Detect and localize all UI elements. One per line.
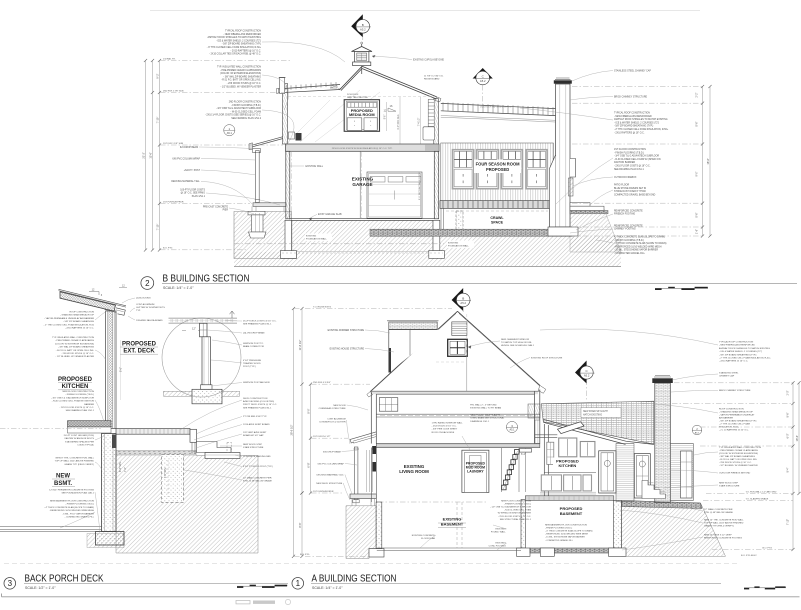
svg-text:ROOF CONSTRUCTION: ROOF CONSTRUCTION xyxy=(719,409,744,411)
svg-text:STAGGERED SPACING PER: STAGGERED SPACING PER xyxy=(65,440,94,443)
svg-text:8'-6": 8'-6" xyxy=(385,115,387,120)
svg-text:NEW W16X31 WIDE FLANGE: NEW W16X31 WIDE FLANGE xyxy=(470,414,500,417)
svg-text:GRADE TYP. (FIELD VERIFY): GRADE TYP. (FIELD VERIFY) xyxy=(64,463,94,466)
svg-text:- FINISH FLOORING (T.B.D.): - FINISH FLOORING (T.B.D.) xyxy=(65,504,94,506)
svg-text:EXISTING CUPOLA BEYOND: EXISTING CUPOLA BEYOND xyxy=(413,59,444,62)
svg-text:- 2X10 FLOOR JOISTS @ 16" O.C.: - 2X10 FLOOR JOISTS @ 16" O.C. xyxy=(498,516,531,518)
svg-text:BTW. @ 48" BELOW GRADE: BTW. @ 48" BELOW GRADE xyxy=(704,511,733,514)
svg-text:B: B xyxy=(462,297,464,301)
svg-text:7'-10": 7'-10" xyxy=(156,117,160,124)
svg-text:- REINFORCED 10/10 WELDED WIRE: - REINFORCED 10/10 WELDED WIRE MESH xyxy=(545,534,588,536)
svg-text:BEAM CONNECTOR: BEAM CONNECTOR xyxy=(243,345,264,348)
svg-text:SEE FRAMING PLAN 1/S1.1: SEE FRAMING PLAN 1/S1.1 xyxy=(243,323,272,326)
svg-text:(COLOR: W/ EXTERIOR ELEVATIONS: (COLOR: W/ EXTERIOR ELEVATIONS) xyxy=(220,72,261,75)
svg-text:PROPOSED: PROPOSED xyxy=(486,167,509,172)
svg-text:EXISTING HOUSE STRUCTURE: EXISTING HOUSE STRUCTURE xyxy=(330,349,365,351)
svg-text:A5.2: A5.2 xyxy=(460,301,466,305)
svg-text:SEE FRAMING PLAN 1/S1.1: SEE FRAMING PLAN 1/S1.1 xyxy=(614,168,644,171)
svg-text:1: 1 xyxy=(296,579,301,588)
svg-text:- 2X6 WOOD STUDS @ 16" O.C.: - 2X6 WOOD STUDS @ 16" O.C. xyxy=(61,353,94,355)
svg-text:TOP OF WALL @24" ABOVE FINISHE: TOP OF WALL @24" ABOVE FINISHED xyxy=(55,460,95,463)
svg-text:- PRE-PRIMED CEDAR CLAPBOARDS: - PRE-PRIMED CEDAR CLAPBOARDS xyxy=(719,449,758,452)
svg-text:HUNGS. SEE SCHEDULE 2/A6.1: HUNGS. SEE SCHEDULE 2/A6.1 xyxy=(501,344,535,347)
svg-text:2ND FLR 6'-8 3/4": 2ND FLR 6'-8 3/4" xyxy=(313,382,331,384)
svg-text:- FINISH FLOORING (T.B.D.): - FINISH FLOORING (T.B.D.) xyxy=(65,394,94,396)
svg-text:NEW WOOD STEP: NEW WOOD STEP xyxy=(243,444,263,446)
svg-text:- 3/8" WAL ZIP BOARD SHEATHING: - 3/8" WAL ZIP BOARD SHEATHING xyxy=(58,346,94,349)
svg-text:- R-30 CLOSED CELL FOAM W/ (SP: - R-30 CLOSED CELL FOAM W/ (SPRAY-ON xyxy=(614,158,661,161)
svg-text:REINFORCED CONCRETE: REINFORCED CONCRETE xyxy=(614,211,643,213)
svg-text:- 9" THK CLOSED CELL FOAM INSU: - 9" THK CLOSED CELL FOAM INSULATION, R-… xyxy=(207,46,262,49)
svg-text:2ND FLR 2 7/8" SUB: 2ND FLR 2 7/8" SUB xyxy=(163,90,184,92)
svg-text:- R-21 F.G. BATT OR OPEN CELL: - R-21 F.G. BATT OR OPEN CELL INS. xyxy=(719,458,758,461)
svg-text:REINFORCED CONCRETE: REINFORCED CONCRETE xyxy=(614,226,643,228)
svg-text:TYP. INSULATED WALL CONSTRUCTI: TYP. INSULATED WALL CONSTRUCTION xyxy=(217,66,261,69)
svg-text:BARRIER: BARRIER xyxy=(84,403,94,406)
svg-text:(2)LOW DROP BEAM: (2)LOW DROP BEAM xyxy=(243,332,265,335)
svg-text:DECK CONSTRUCTION: DECK CONSTRUCTION xyxy=(243,398,268,400)
svg-text:(COLOR: W/ EXTERIOR ELEVATIONS: (COLOR: W/ EXTERIOR ELEVATIONS) xyxy=(55,342,94,345)
svg-text:NEW CASEMENT WINDOW: NEW CASEMENT WINDOW xyxy=(501,338,530,341)
svg-text:8'-6": 8'-6" xyxy=(696,212,699,217)
svg-text:COMPACTED GRAVEL BASE BEYOND: COMPACTED GRAVEL BASE BEYOND xyxy=(614,193,656,196)
svg-text:TYP. INSULATED WALL CONSTRUCTI: TYP. INSULATED WALL CONSTRUCTION xyxy=(52,336,94,339)
svg-text:@ 16" O.C. SEE FRMG: @ 16" O.C. SEE FRMG xyxy=(181,193,206,195)
svg-text:- 2X12 FLOOR JOISTS @ 16" O.C.: - 2X12 FLOOR JOISTS @ 16" O.C. xyxy=(59,407,94,409)
svg-text:KITCHEN: KITCHEN xyxy=(559,463,577,468)
svg-text:- 3/4" OSB T.& G ADVANTECH SUB: - 3/4" OSB T.& G ADVANTECH SUBFLOOR xyxy=(614,155,659,158)
svg-text:T.O. SLAB/FIN GRADE: T.O. SLAB/FIN GRADE xyxy=(746,498,769,501)
svg-text:- NEW FIBERGLASS REINFORCED: - NEW FIBERGLASS REINFORCED xyxy=(614,115,652,118)
svg-text:1ST FLR/SUB FRDR: 1ST FLR/SUB FRDR xyxy=(313,491,334,493)
svg-text:4'-0" MIN.: 4'-0" MIN. xyxy=(164,467,167,478)
svg-text:RAFT TAILS BEYOND: RAFT TAILS BEYOND xyxy=(347,96,368,99)
svg-text:EXT. DECK: EXT. DECK xyxy=(123,349,155,355)
svg-text:- FINISH FLOORING (T.B.D.): - FINISH FLOORING (T.B.D.) xyxy=(231,105,261,107)
svg-text:DOWNSPOUT & GUTTER: DOWNSPOUT & GUTTER xyxy=(320,422,347,424)
svg-text:- 5/8" ZIP BOARD SHEATHING (TY: - 5/8" ZIP BOARD SHEATHING (TYP.) xyxy=(719,353,757,356)
svg-text:GRADE TYP. (FIELD VERIFY): GRADE TYP. (FIELD VERIFY) xyxy=(704,525,734,528)
svg-text:SCALE: 1/4" = 1'-0": SCALE: 1/4" = 1'-0" xyxy=(163,286,194,290)
svg-text:SIMPSON POST TO: SIMPSON POST TO xyxy=(243,343,263,345)
svg-text:- 4" THICK CONCRETE SLAB (SLOP: - 4" THICK CONCRETE SLAB (SLOPE TO DRAIN… xyxy=(44,506,94,509)
svg-text:2X10 FLOOR JOISTS W/ R-30 INSU: 2X10 FLOOR JOISTS W/ R-30 INSULATION @ 1… xyxy=(332,147,393,150)
svg-text:6'-8": 6'-8" xyxy=(307,462,311,467)
svg-text:- 2" THK CLOSED CELL FOAM INSU: - 2" THK CLOSED CELL FOAM INSULATION, R-… xyxy=(719,357,771,360)
svg-text:- 5/8" ZIP BOARD SHEATHING (TY: - 5/8" ZIP BOARD SHEATHING (TYP.) xyxy=(614,125,653,128)
svg-text:RIDGE BOARD: RIDGE BOARD xyxy=(424,78,440,81)
svg-text:PIER: PIER xyxy=(223,210,229,212)
svg-text:FOUNDATION WALL: FOUNDATION WALL xyxy=(448,245,470,248)
svg-text:BRICK CHIMNEY STRUCTURE: BRICK CHIMNEY STRUCTURE xyxy=(719,390,751,392)
svg-text:AZEK DECKING (COLOR TBD): AZEK DECKING (COLOR TBD) xyxy=(243,400,274,403)
svg-text:A5.2: A5.2 xyxy=(584,374,590,378)
svg-text:EXISTING: EXISTING xyxy=(448,243,459,245)
svg-text:FIREBOX FOOTING: FIREBOX FOOTING xyxy=(614,214,635,216)
svg-text:BACK PORCH DECK: BACK PORCH DECK xyxy=(25,574,104,585)
svg-text:4" THICK CONCRETE SLAB (SLOPE: 4" THICK CONCRETE SLAB (SLOPE TO DRAIN) xyxy=(614,236,665,239)
svg-text:- 5/8" ZIP BOARD SHEATHING (TY: - 5/8" ZIP BOARD SHEATHING (TYP.) xyxy=(222,43,261,46)
svg-text:B: B xyxy=(362,23,364,27)
svg-text:IGNITION BARRIER: IGNITION BARRIER xyxy=(614,161,635,164)
svg-text:ROCK ON EACH SIDE: ROCK ON EACH SIDE xyxy=(432,431,455,434)
svg-text:- STANDING SEAM METAL ROOF: - STANDING SEAM METAL ROOF xyxy=(719,411,754,414)
svg-text:- R-21 F.G. BATT OR OPEN CELL: - R-21 F.G. BATT OR OPEN CELL INS. xyxy=(56,349,95,352)
svg-text:- W-30 CLOSED CELL FOAM: - W-30 CLOSED CELL FOAM xyxy=(230,110,261,113)
svg-text:- R-30 CLOSED CELL FOAM W/ IGN: - R-30 CLOSED CELL FOAM W/ IGNITION xyxy=(52,400,95,403)
svg-text:2X10 ROOF RAFTERS @ 16" O.C.: 2X10 ROOF RAFTERS @ 16" O.C. xyxy=(480,106,512,109)
svg-text:CHIMNEY FOOTING: CHIMNEY FOOTING xyxy=(614,229,636,231)
svg-text:PT 2X8 RIM JOIST TYP.: PT 2X8 RIM JOIST TYP. xyxy=(243,416,267,418)
svg-text:EXISTING: EXISTING xyxy=(306,236,317,238)
svg-text:LIVING ROOM: LIVING ROOM xyxy=(399,469,429,474)
svg-text:- VAPOR-PERMEABLE UNDERLAY AIR: - VAPOR-PERMEABLE UNDERLAY AIR BARRIER xyxy=(44,317,94,320)
svg-text:- 1/2" BLUEBD. W/ VENEER PLAST: - 1/2" BLUEBD. W/ VENEER PLASTER xyxy=(220,85,261,88)
svg-text:B.O. FTG ELEV: B.O. FTG ELEV xyxy=(741,555,757,557)
svg-text:CODE) TYPICAL: CODE) TYPICAL xyxy=(77,444,95,447)
svg-text:AIR BARRIER: AIR BARRIER xyxy=(719,417,733,420)
svg-text:A5.1: A5.1 xyxy=(695,431,700,434)
svg-text:FOUNDATION WALL: FOUNDATION WALL xyxy=(306,238,328,241)
svg-text:A5.1: A5.1 xyxy=(510,429,516,432)
svg-text:PROPOSED: PROPOSED xyxy=(122,342,157,348)
svg-text:9'-0": 9'-0" xyxy=(696,171,699,176)
svg-text:- 3/8" WAL ZIP BOARD SHEATHING: - 3/8" WAL ZIP BOARD SHEATHING xyxy=(223,75,261,78)
svg-text:- 3/8" WAL ZIP BOARD SHEATHING: - 3/8" WAL ZIP BOARD SHEATHING xyxy=(719,455,755,458)
svg-text:DO-PT JOIST LEDGER (2X10): DO-PT JOIST LEDGER (2X10) xyxy=(64,435,95,437)
svg-text:100-PT FLOOR JOISTS: 100-PT FLOOR JOISTS xyxy=(180,190,205,192)
svg-text:1/2 RAIL HT.: 1/2 RAIL HT. xyxy=(163,57,176,60)
svg-text:NEW 10" THK. CONCRETE FDN. WAL: NEW 10" THK. CONCRETE FDN. WALL xyxy=(704,519,744,522)
svg-text:1'-6": 1'-6" xyxy=(696,229,699,234)
svg-text:BASEMENT: BASEMENT xyxy=(560,511,583,516)
svg-text:TYPICAL ROOF CONSTRUCTION: TYPICAL ROOF CONSTRUCTION xyxy=(225,30,261,33)
svg-text:NEW FIXED SKYLIGHT: NEW FIXED SKYLIGHT xyxy=(583,411,608,413)
svg-text:STAIR STRUCTURE: STAIR STRUCTURE xyxy=(243,446,264,449)
svg-text:EXISTING WALL TO FIT BEAM: EXISTING WALL TO FIT BEAM xyxy=(470,407,501,410)
svg-text:4"X4" PRESSURE: 4"X4" PRESSURE xyxy=(243,360,262,362)
svg-text:CURB/HEAD STRUCTURE: CURB/HEAD STRUCTURE xyxy=(319,407,347,410)
svg-text:A5.2: A5.2 xyxy=(480,79,486,83)
svg-text:FASTEN W/ ANCHOR BOLTS: FASTEN W/ ANCHOR BOLTS xyxy=(65,437,95,440)
svg-text:- 2X10 RAFTERS @ 16" O.C.: - 2X10 RAFTERS @ 16" O.C. xyxy=(614,131,645,134)
svg-text:- ICE & WATER SHIELD: 2 COURSE: - ICE & WATER SHIELD: 2 COURSES (72") xyxy=(216,39,261,42)
svg-text:EXISTING DORMER STRUCTURE: EXISTING DORMER STRUCTURE xyxy=(328,330,365,332)
svg-text:NEW 24" WIDE X 12" DEEP: NEW 24" WIDE X 12" DEEP xyxy=(704,535,732,537)
svg-text:12"X24" PERIMETER CONCRETE FOO: 12"X24" PERIMETER CONCRETE FOOTING xyxy=(49,490,94,492)
svg-text:TYP.: TYP. xyxy=(136,310,141,312)
svg-text:- R-21 F.G. BATT OR OPEN CELL: - R-21 F.G. BATT OR OPEN CELL INS. xyxy=(221,79,262,82)
svg-text:- 2" THK CLOSED CELL FOAM INSU: - 2" THK CLOSED CELL FOAM INSULATION, R-… xyxy=(44,323,95,326)
svg-text:1X8 AZEK FASCIA BOARD: 1X8 AZEK FASCIA BOARD xyxy=(136,319,163,322)
svg-text:- FINISH FLOORING (T.B.D.): - FINISH FLOORING (T.B.D.) xyxy=(545,528,572,530)
svg-text:12": 12" xyxy=(192,327,196,331)
svg-text:SIMPSON POST ANCHOR: SIMPSON POST ANCHOR xyxy=(243,381,270,384)
svg-text:- 15 MIL. STEGOHOME VAPOR BARR: - 15 MIL. STEGOHOME VAPOR BARRIER xyxy=(614,249,658,252)
svg-text:BASEMENT: BASEMENT xyxy=(441,521,464,526)
svg-text:CONT ALUMINUM: CONT ALUMINUM xyxy=(327,418,345,421)
svg-text:- 2X10 1/4 FLOOR JOISTS (SEE S: - 2X10 1/4 FLOOR JOISTS (SEE SERIES) @ 1… xyxy=(205,115,261,117)
svg-text:GUTTER W/ DOWNSPOUTS: GUTTER W/ DOWNSPOUTS xyxy=(136,307,165,309)
svg-text:- 2X10 RAFTERS @ 16" O.C.: - 2X10 RAFTERS @ 16" O.C. xyxy=(65,327,94,330)
svg-text:1ST FLOOR CONSTRUCTION: 1ST FLOOR CONSTRUCTION xyxy=(614,149,646,151)
svg-text:LAUNDRY: LAUNDRY xyxy=(467,470,484,474)
svg-text:STEEL BEAM SEE STRUCTURAL: STEEL BEAM SEE STRUCTURAL xyxy=(470,417,505,420)
svg-text:PROPOSED: PROPOSED xyxy=(58,377,93,383)
svg-text:2'-2": 2'-2" xyxy=(696,92,699,97)
svg-text:FOUND. WALL: FOUND. WALL xyxy=(491,531,507,534)
svg-text:6X6 PVC COLUMN WRAP: 6X6 PVC COLUMN WRAP xyxy=(172,157,200,160)
svg-text:T.O. FDN WALL 2'-0" ABV GRD: T.O. FDN WALL 2'-0" ABV GRD xyxy=(746,490,777,493)
svg-text:NEW FLOOR CONSTRUCTION: NEW FLOOR CONSTRUCTION xyxy=(63,391,95,393)
svg-text:- 2X4 STUDS @ 16" O.C.: - 2X4 STUDS @ 16" O.C. xyxy=(432,426,457,428)
svg-text:ASPHALT ROOF SHINGLES TO MATCH: ASPHALT ROOF SHINGLES TO MATCH EXISTING xyxy=(614,118,668,121)
svg-text:PRE-CAST CONCRETE: PRE-CAST CONCRETE xyxy=(203,206,229,209)
svg-text:2ND FLOOR CONSTRUCTION: 2ND FLOOR CONSTRUCTION xyxy=(229,102,262,104)
svg-text:2X8 PT DECK JOISTS @ 16" O.C.: 2X8 PT DECK JOISTS @ 16" O.C. xyxy=(243,404,277,406)
svg-text:BSMT.: BSMT. xyxy=(54,481,72,487)
svg-text:11'-8 1/2": 11'-8 1/2" xyxy=(298,340,302,351)
svg-text:- COMPACTED GRAVEL FILL: - COMPACTED GRAVEL FILL xyxy=(545,539,574,542)
svg-text:- ICE & WATER SHIELD: 2 COURSE: - ICE & WATER SHIELD: 2 COURSES (72") xyxy=(614,121,659,124)
svg-text:NEW WOOD STEP: NEW WOOD STEP xyxy=(719,483,739,485)
svg-text:- COMPACTED GRAVEL FILL: - COMPACTED GRAVEL FILL xyxy=(65,516,95,519)
svg-text:7'-10": 7'-10" xyxy=(787,519,790,525)
svg-text:12" DIAM. CONCRETE PIER: 12" DIAM. CONCRETE PIER xyxy=(243,477,272,480)
svg-text:9'-0" FIN. CLG: 9'-0" FIN. CLG xyxy=(398,114,400,129)
svg-text:PATIO FLOOR: PATIO FLOOR xyxy=(614,184,629,187)
svg-text:ASPHALT ROOF SHINGLES TO MATCH: ASPHALT ROOF SHINGLES TO MATCH EXISTING xyxy=(207,36,261,39)
svg-text:- FINISH FLOORING (T.B.D.): - FINISH FLOORING (T.B.D.) xyxy=(614,240,644,242)
svg-text:- 2X6 WOOD STUDS @ 16" O.C.: - 2X6 WOOD STUDS @ 16" O.C. xyxy=(719,462,752,464)
svg-text:ASPHALT ROOF SHINGLES TO MATCH: ASPHALT ROOF SHINGLES TO MATCH EXISTING xyxy=(719,347,770,350)
svg-text:GARAGE: GARAGE xyxy=(352,182,372,187)
svg-text:- 2" THK CLOSED CELL FOAM: - 2" THK CLOSED CELL FOAM xyxy=(719,423,750,426)
svg-text:- NEW FIBERGLASS REINFORCED: - NEW FIBERGLASS REINFORCED xyxy=(223,33,261,36)
svg-text:- 5/8" FIRE CODE SHEET: - 5/8" FIRE CODE SHEET xyxy=(432,429,458,431)
svg-text:7'-10": 7'-10" xyxy=(156,224,160,231)
svg-text:CONCRETE LANDING PAD: CONCRETE LANDING PAD xyxy=(243,455,271,458)
svg-text:NEW: NEW xyxy=(56,474,70,480)
svg-text:SEE FOUNDATION PLAN 1/A1.1: SEE FOUNDATION PLAN 1/A1.1 xyxy=(61,492,94,495)
svg-text:2: 2 xyxy=(145,279,150,288)
svg-text:8'-6": 8'-6" xyxy=(787,412,790,417)
svg-text:FIN. WALL 2"- 4" BEYOND: FIN. WALL 2"- 4" BEYOND xyxy=(470,404,497,407)
svg-text:KITCHEN: KITCHEN xyxy=(62,384,89,390)
svg-text:(COLOR: W/ EXTERIOR ELEVATIONS: (COLOR: W/ EXTERIOR ELEVATIONS) xyxy=(719,452,758,455)
svg-text:TYPICAL ROOF CONSTRUCTION: TYPICAL ROOF CONSTRUCTION xyxy=(719,341,754,344)
svg-text:1X10 AZEK SKIRT BOARD: 1X10 AZEK SKIRT BOARD xyxy=(243,423,270,426)
svg-text:(2) BLOCKING: (2) BLOCKING xyxy=(136,298,151,300)
svg-text:DECKING MATERIAL T.&G.: DECKING MATERIAL T.&G. xyxy=(317,474,345,477)
svg-text:1 HR. RATED INTERIOR WALL: 1 HR. RATED INTERIOR WALL xyxy=(432,422,464,425)
svg-text:STAINLESS STEEL CHIMNEY CAP: STAINLESS STEEL CHIMNEY CAP xyxy=(614,70,651,73)
svg-text:CONC FOOTING: CONC FOOTING xyxy=(489,546,506,548)
svg-text:SCALE: 1/2" = 1'-0": SCALE: 1/2" = 1'-0" xyxy=(25,586,56,590)
svg-text:- REINFORCED 10/10 WELDED WIRE: - REINFORCED 10/10 WELDED WIRE MESH xyxy=(614,246,662,248)
svg-text:- 1/2" BLUEBD. W/ VENEER PLAST: - 1/2" BLUEBD. W/ VENEER PLASTER xyxy=(55,355,94,358)
svg-text:- 3/4" OSB T.& G ADVANTECH SUB: - 3/4" OSB T.& G ADVANTECH SUBFLOOR xyxy=(216,107,261,110)
svg-text:NEW DOOR: NEW DOOR xyxy=(333,405,346,407)
svg-text:STAINLESS STEEL: STAINLESS STEEL xyxy=(719,372,739,375)
svg-text:NEW FLOOR CONSTRUCTION: NEW FLOOR CONSTRUCTION xyxy=(501,501,531,503)
svg-text:ROOF CONSTRUCTION: ROOF CONSTRUCTION xyxy=(69,312,94,314)
svg-text:- VAPOR-PERMEABLE UNDERLAY: - VAPOR-PERMEABLE UNDERLAY xyxy=(719,414,755,417)
svg-text:DRAWINGS 1/S1.1: DRAWINGS 1/S1.1 xyxy=(470,420,490,423)
svg-text:BLUE STONE PAVERS SET IN: BLUE STONE PAVERS SET IN xyxy=(614,187,646,190)
svg-text:1ST FLR/SUB FRDR: 1ST FLR/SUB FRDR xyxy=(163,201,184,203)
svg-text:11 7/8" X 2 3/4" LVL: 11 7/8" X 2 3/4" LVL xyxy=(424,76,444,78)
svg-text:1ST FLR 8'-0 1/2": 1ST FLR 8'-0 1/2" xyxy=(313,436,331,438)
svg-text:8'-6": 8'-6" xyxy=(120,367,123,372)
svg-text:B.O. FTG: B.O. FTG xyxy=(763,547,773,549)
svg-text:18'-6": 18'-6" xyxy=(706,158,710,165)
svg-text:EXISTING CONCRETE: EXISTING CONCRETE xyxy=(412,535,436,537)
svg-text:SEE FRAMING PLAN 1/S1.2: SEE FRAMING PLAN 1/S1.2 xyxy=(231,117,261,120)
svg-text:EXISTING: EXISTING xyxy=(495,529,506,531)
svg-text:OUTDOOR FIREBOX BEYOND: OUTDOOR FIREBOX BEYOND xyxy=(719,473,751,475)
svg-text:DECKING MATERIAL T.&G.: DECKING MATERIAL T.&G. xyxy=(171,180,200,183)
svg-text:EXISTING: EXISTING xyxy=(495,543,506,545)
svg-text:- 1/2" OSB T.& G ADVANTECH SUB: - 1/2" OSB T.& G ADVANTECH SUBFLOOR xyxy=(490,506,531,509)
svg-text:SPACE: SPACE xyxy=(491,220,504,224)
svg-text:6x6 DROP BEAM: 6x6 DROP BEAM xyxy=(180,146,198,149)
svg-text:- FINISH FLOORING (T.B.D.): - FINISH FLOORING (T.B.D.) xyxy=(614,152,644,154)
svg-text:- 2X10 RAFTERS @ 16" O.C.: - 2X10 RAFTERS @ 16" O.C. xyxy=(719,360,748,363)
svg-text:TYP. INSULATED WALL CONSTRUCTI: TYP. INSULATED WALL CONSTRUCTION xyxy=(719,446,761,449)
svg-text:2'-0": 2'-0" xyxy=(787,390,790,395)
svg-text:PLAN 1/S1.1: PLAN 1/S1.1 xyxy=(192,195,206,198)
svg-text:7'-2": 7'-2" xyxy=(124,467,127,472)
svg-text:BOARD AT 1/4" GAP: BOARD AT 1/4" GAP xyxy=(243,434,264,437)
svg-text:EXIST GARAGE SLAB: EXIST GARAGE SLAB xyxy=(318,213,342,216)
svg-text:- 2X6 WOOD STUDS @ 16" O.C.: - 2X6 WOOD STUDS @ 16" O.C. xyxy=(227,83,262,85)
svg-text:TYPICAL ROOF CONSTRUCTION: TYPICAL ROOF CONSTRUCTION xyxy=(614,112,650,115)
svg-text:- PRE-PRIMED CEDAR CLAPBOARDS: - PRE-PRIMED CEDAR CLAPBOARDS xyxy=(55,339,94,342)
svg-text:6'-2": 6'-2" xyxy=(521,453,526,456)
svg-text:TREATED WOOD: TREATED WOOD xyxy=(243,362,261,365)
svg-text:- 2X10 COLLAR TIES OR EACH RSB: - 2X10 COLLAR TIES OR EACH RSB. @ 48" O.… xyxy=(209,53,261,56)
svg-text:8'-4": 8'-4" xyxy=(787,467,790,472)
svg-text:2X10 ROOF: 2X10 ROOF xyxy=(347,94,359,96)
svg-text:EXISTING WALL: EXISTING WALL xyxy=(306,165,324,168)
svg-text:T.O. RIDGE EXTG: T.O. RIDGE EXTG xyxy=(313,306,331,308)
svg-text:STONE DUST OVER 6" THICK: STONE DUST OVER 6" THICK xyxy=(614,191,647,193)
svg-text:9'-2": 9'-2" xyxy=(156,73,160,78)
svg-text:8'-0": 8'-0" xyxy=(307,408,311,413)
svg-text:- 1/2" BLUEBD. W/ VENEER PLAST: - 1/2" BLUEBD. W/ VENEER PLASTER xyxy=(719,464,758,467)
svg-text:3: 3 xyxy=(8,579,13,588)
svg-text:- 5/8" ZIP BOARD SHEATHING: - 5/8" ZIP BOARD SHEATHING xyxy=(63,320,94,323)
svg-text:HATCH EXISTING: HATCH EXISTING xyxy=(583,414,602,417)
svg-text:POST (TYP.): POST (TYP.) xyxy=(243,366,256,368)
svg-text:18'-6": 18'-6" xyxy=(795,435,799,442)
svg-text:- 4" THICK CONCRETE SLAB (SLOP: - 4" THICK CONCRETE SLAB (SLOPE TO DRAIN… xyxy=(545,530,593,533)
svg-text:- PRE-PRIMED CEDAR CLAPBOARDS: - PRE-PRIMED CEDAR CLAPBOARDS xyxy=(220,69,261,72)
svg-text:- 4" THICK CONCRETE SLAB (SLOP: - 4" THICK CONCRETE SLAB (SLOPE TO DRAIN… xyxy=(614,242,667,245)
svg-text:SEE FRAMING PLAN 1/S1.1: SEE FRAMING PLAN 1/S1.1 xyxy=(243,406,272,409)
svg-text:6'-0": 6'-0" xyxy=(787,433,790,438)
svg-text:1ST FLR 1 1/8" SUB: 1ST FLR 1 1/8" SUB xyxy=(163,143,184,145)
svg-text:- FINISH FLOORING (T.B.D.): - FINISH FLOORING (T.B.D.) xyxy=(504,504,531,506)
svg-text:NEW BASEMENT FLOOR CONSTRUCTIO: NEW BASEMENT FLOOR CONSTRUCTION xyxy=(545,524,587,527)
svg-text:A5.1: A5.1 xyxy=(227,132,233,135)
svg-text:A5.2: A5.2 xyxy=(360,27,366,31)
svg-text:DO-PT DECK JOISTS @ 16" O.C.: DO-PT DECK JOISTS @ 16" O.C. xyxy=(243,321,277,323)
svg-text:12" DIAM. CONCRETE PIER: 12" DIAM. CONCRETE PIER xyxy=(704,508,733,511)
svg-text:MEDIA ROOM: MEDIA ROOM xyxy=(349,112,375,117)
svg-text:NEW DECK STRUCTURE: NEW DECK STRUCTURE xyxy=(316,483,342,485)
svg-text:- 3/4" OSB T.& G ADVANTECH SUB: - 3/4" OSB T.& G ADVANTECH SUBFLOOR xyxy=(51,396,94,399)
svg-text:SEE FRAMING PLAN 1/S1.1: SEE FRAMING PLAN 1/S1.1 xyxy=(66,409,95,412)
svg-text:6X6 DROP BEAM: 6X6 DROP BEAM xyxy=(323,451,341,454)
svg-text:BTW. @ 48" BELOW GRADE: BTW. @ 48" BELOW GRADE xyxy=(243,480,272,483)
svg-text:- 2X10 RAFTERS @ 16" O.C.: - 2X10 RAFTERS @ 16" O.C. xyxy=(231,49,262,52)
svg-text:REINFORCED CONCRETE FOOTING: REINFORCED CONCRETE FOOTING xyxy=(704,538,742,540)
svg-text:22'-2": 22'-2" xyxy=(142,152,146,159)
svg-text:15'-6": 15'-6" xyxy=(149,152,153,159)
svg-text:EXISTING ROOF STRUCTURE: EXISTING ROOF STRUCTURE xyxy=(531,358,563,360)
svg-text:- 15 MIL. STEGOHOME VAPOR BARR: - 15 MIL. STEGOHOME VAPOR BARRIER xyxy=(545,536,585,539)
svg-text:TO MATCH TOP HIGH OF DBL: TO MATCH TOP HIGH OF DBL xyxy=(501,341,533,344)
svg-text:- REINFORCED 10/10 WELDED WIRE: - REINFORCED 10/10 WELDED WIRE MESH xyxy=(49,510,95,512)
svg-text:SEE STRUCTURAL PLAN COL.1: SEE STRUCTURAL PLAN COL.1 xyxy=(500,518,532,521)
svg-text:- 2X10 FLOOR JOISTS @ 16" O.C.: - 2X10 FLOOR JOISTS @ 16" O.C. xyxy=(614,166,651,168)
svg-text:CONT ALUMINUM: CONT ALUMINUM xyxy=(136,303,154,306)
svg-text:NEW BASEMENT FLOOR CONSTRUCTIO: NEW BASEMENT FLOOR CONSTRUCTION xyxy=(50,500,94,503)
svg-text:8'-0" MIN.: 8'-0" MIN. xyxy=(119,461,122,472)
svg-text:W/ SPRAY-ON IGNITION BARRIER: W/ SPRAY-ON IGNITION BARRIER xyxy=(498,512,532,515)
svg-text:- NEW FIBERGLASS REINFORCED: - NEW FIBERGLASS REINFORCED xyxy=(719,344,755,347)
svg-text:- 2 x 10 RAFTERS @ 16" O.C.: - 2 x 10 RAFTERS @ 16" O.C. xyxy=(719,429,749,432)
svg-text:4"X4" PT WOOD POST (TYP.): 4"X4" PT WOOD POST (TYP.) xyxy=(243,466,273,468)
svg-text:28'-6 1/2": 28'-6 1/2" xyxy=(290,424,294,435)
svg-text:- ICE & WATER SHIELD: 2 COURSE: - ICE & WATER SHIELD: 2 COURSES (72") xyxy=(719,350,762,353)
svg-text:SCALE: 1/4" = 1'-0": SCALE: 1/4" = 1'-0" xyxy=(312,586,343,590)
svg-text:- 5/8" ZIP BOARD SHEATHING (TY: - 5/8" ZIP BOARD SHEATHING (TYP.) xyxy=(719,420,757,423)
svg-text:8'-6": 8'-6" xyxy=(696,121,699,126)
svg-text:CHIMNEY CAP: CHIMNEY CAP xyxy=(719,375,735,378)
svg-text:- 2" THK CLOSED CELL FOAM INSU: - 2" THK CLOSED CELL FOAM INSULATION, R-… xyxy=(614,128,669,131)
svg-text:A BUILDING SECTION: A BUILDING SECTION xyxy=(312,574,397,585)
svg-text:FLOOR SLAB: FLOOR SLAB xyxy=(421,537,435,540)
svg-text:- STANDING SEAM METAL ROOF: - STANDING SEAM METAL ROOF xyxy=(60,314,95,317)
svg-text:FOUR SEASON ROOM: FOUR SEASON ROOM xyxy=(476,161,520,166)
svg-text:- COMPACTED GRAVEL FILL: - COMPACTED GRAVEL FILL xyxy=(614,252,646,255)
svg-text:1X2 VERT AZEK SKIRT: 1X2 VERT AZEK SKIRT xyxy=(243,431,267,434)
svg-text:B.O. FTG: B.O. FTG xyxy=(300,554,310,556)
svg-text:- R-30 CLOSED CELL FOAM: - R-30 CLOSED CELL FOAM xyxy=(504,509,531,512)
svg-text:+6x6 P.T. POST: +6x6 P.T. POST xyxy=(184,170,201,172)
svg-text:7'-4 1/2": 7'-4 1/2" xyxy=(419,118,421,127)
svg-text:8'-6": 8'-6" xyxy=(298,522,302,527)
svg-text:BRICK CHIMNEY STRUCTURE: BRICK CHIMNEY STRUCTURE xyxy=(614,97,647,99)
svg-text:NEW 8" THK. CONCRETE FDN. WALL: NEW 8" THK. CONCRETE FDN. WALL xyxy=(56,457,95,460)
svg-text:STAIR STRUCTURE: STAIR STRUCTURE xyxy=(719,485,740,488)
svg-text:6X6 PVC COLUMN WRAP: 6X6 PVC COLUMN WRAP xyxy=(318,463,345,466)
svg-text:OUTDOOR FIREBOX: OUTDOOR FIREBOX xyxy=(614,177,637,179)
svg-text:B.O. FTG: B.O. FTG xyxy=(163,248,173,250)
svg-text:8'-0" RETRACTABLE DOOR: 8'-0" RETRACTABLE DOOR xyxy=(418,172,421,200)
svg-text:TOP OF WALL @24" ABOVE FINISHE: TOP OF WALL @24" ABOVE FINISHED xyxy=(704,522,744,525)
